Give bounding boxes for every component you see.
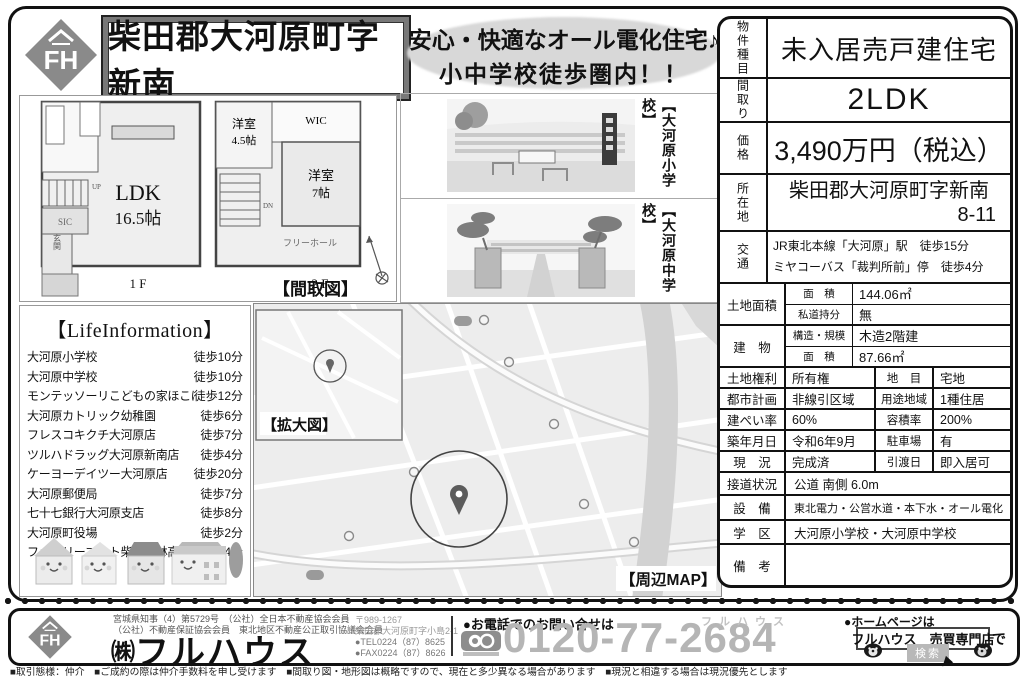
- dog-icon: [863, 643, 883, 663]
- spec-value-layout: 2LDK: [768, 79, 1010, 121]
- footer-bar: FH 宮城県知事（4）第5729号 （公社）全日本不動産協会会員 （公社）不動産…: [8, 608, 1020, 666]
- table-row: 建 物 構造・規模 木造2階建 面 積 87.66㎡: [720, 324, 1010, 366]
- table-row: 間取り 2LDK: [720, 77, 1010, 121]
- floorplan-figure: UP SIC 玄関 LDK 16.5帖 1 F 洋室 4.5帖 WIC 洋室 7…: [19, 95, 397, 302]
- floorplan-freehall-label: フリーホール: [283, 238, 337, 248]
- table-row: 所在地 柴田郡大河原町字新南 8-11: [720, 173, 1010, 230]
- freedial-icon: [461, 631, 501, 662]
- houses-illustration: [24, 534, 246, 593]
- spec-value2: 有: [934, 431, 1010, 450]
- cursor-icon: [943, 656, 955, 669]
- junior-high-school-caption: 【大河原中学校】: [639, 203, 679, 298]
- spec-subvalue: 144.06㎡: [853, 284, 1010, 304]
- footer-company-logo-icon: FH: [27, 614, 73, 660]
- phone-brand-kana: フルハウス: [701, 613, 791, 629]
- spec-value: 大河原小学校・大河原中学校: [786, 521, 1010, 543]
- spec-value: [786, 545, 1010, 585]
- spec-sublabel: 面 積: [786, 284, 853, 304]
- disclaimer-text: ■取引態様：仲介 ■ご成約の際は仲介手数料を申し受けます ■間取り図・地形図は概…: [10, 664, 788, 678]
- photo-elementary: 【大河原小学校】: [401, 94, 721, 199]
- spec-value: 完成済: [786, 452, 876, 471]
- photo-panel: 【大河原小学校】: [400, 93, 722, 303]
- spec-value-type: 未入居売戸建住宅: [768, 19, 1010, 77]
- spec-value: 非線引区域: [786, 389, 876, 408]
- search-row: 検索: [863, 645, 993, 661]
- floorplan-ldk-label: LDK: [115, 180, 160, 205]
- life-information-title: 【LifeInformation】: [20, 314, 250, 343]
- spec-value-access1: JR東北本線「大河原」駅 徒歩15分: [773, 236, 969, 257]
- floorplan-sic-label: SIC: [58, 217, 72, 227]
- spec-value2: 1種住居: [934, 389, 1010, 408]
- floorplan-caption: 【間取図】: [273, 279, 358, 299]
- spec-label-city-planning: 都市計画: [720, 389, 786, 408]
- inset-map-caption: 【拡大図】: [262, 416, 337, 434]
- table-row: 交通 JR東北本線「大河原」駅 徒歩15分 ミヤコーバス「裁判所前」停 徒歩4分: [720, 230, 1010, 282]
- list-item: 大河原小学校徒歩10分: [27, 348, 243, 368]
- map-caption: 【周辺MAP】: [620, 571, 716, 589]
- spec-value: 東北電力・公営水道・本下水・オール電化: [786, 496, 1010, 519]
- spec-label-built: 築年月日: [720, 431, 786, 450]
- spec-value2: 200%: [934, 410, 1010, 429]
- catch-copy: 安心・快適なオール電化住宅♪ 小中学校徒歩圏内！！: [403, 11, 725, 95]
- spec-label-status: 現 況: [720, 452, 786, 471]
- floorplan-up-label: UP: [92, 183, 101, 191]
- spec-sublabel: 構造・規模: [786, 326, 853, 346]
- life-information-panel: 【LifeInformation】 大河原小学校徒歩10分 大河原中学校徒歩10…: [19, 305, 251, 597]
- spec-label2: 用途地域: [876, 389, 934, 408]
- table-row: 備 考: [720, 543, 1010, 585]
- table-row: 現 況 完成済 引渡日 即入居可: [720, 450, 1010, 471]
- table-row: 土地面積 面 積 144.06㎡ 私道持分 無: [720, 282, 1010, 324]
- list-item: フレスコキクチ大河原店徒歩7分: [27, 426, 243, 446]
- spec-label-land-rights: 土地権利: [720, 368, 786, 387]
- footer-divider: [451, 616, 453, 656]
- flyer-main-frame: FH 柴田郡大河原町字新南 安心・快適なオール電化住宅♪ 小中学校徒歩圏内！！ …: [8, 6, 1018, 602]
- spec-value: 令和6年9月: [786, 431, 876, 450]
- spec-value-price: 3,490万円（税込）: [768, 123, 1010, 173]
- list-item: モンテッソーリこどもの家ほこほこ徒歩12分: [27, 387, 243, 407]
- dog-icon: [973, 643, 993, 663]
- spec-label-address: 所在地: [720, 175, 768, 230]
- spec-label-coverage: 建ぺい率: [720, 410, 786, 429]
- elementary-school-caption: 【大河原小学校】: [639, 98, 679, 193]
- neighborhood-map: 【拡大図】 【周辺MAP】: [253, 303, 722, 597]
- search-suffix: で: [992, 629, 1006, 649]
- spec-label-price: 価格: [720, 123, 768, 173]
- floorplan-room45-label: 洋室: [232, 116, 256, 131]
- catch-copy-line2: 小中学校徒歩圏内！！: [403, 55, 725, 89]
- spec-subvalue: 無: [853, 305, 1010, 325]
- elementary-school-photo: [447, 99, 635, 192]
- svg-text:FH: FH: [40, 632, 61, 649]
- floorplan-dn-label: DN: [263, 202, 273, 210]
- compass-icon: [366, 236, 388, 284]
- spec-label-remarks: 備 考: [720, 545, 786, 585]
- floorplan-room7-label: 洋室: [308, 168, 334, 183]
- property-title: 柴田郡大河原町字新南: [103, 17, 409, 99]
- table-row: 都市計画 非線引区域 用途地域 1種住居: [720, 387, 1010, 408]
- floorplan-room7-size: 7帖: [312, 185, 330, 200]
- spec-value-address1: 柴田郡大河原町字新南: [768, 179, 1010, 203]
- table-row: 物件種目 未入居売戸建住宅: [720, 19, 1010, 77]
- list-item: 大河原郵便局徒歩7分: [27, 485, 243, 505]
- spec-value: 公道 南側 6.0m: [786, 473, 1010, 494]
- spec-label-type: 物件種目: [720, 19, 768, 77]
- logo-letters: FH: [44, 45, 79, 75]
- spec-value2: 宅地: [934, 368, 1010, 387]
- spec-value-address2: 8-11: [768, 203, 1010, 227]
- table-row: 価格 3,490万円（税込）: [720, 121, 1010, 173]
- spec-value-access2: ミヤコーバス「裁判所前」停 徒歩4分: [773, 257, 984, 278]
- spec-label-school-district: 学 区: [720, 521, 786, 543]
- catch-copy-line1: 安心・快適なオール電化住宅♪: [403, 21, 725, 55]
- spec-sublabel: 私道持分: [786, 305, 853, 325]
- spec-label-road: 接道状況: [720, 473, 786, 494]
- life-information-list: 大河原小学校徒歩10分 大河原中学校徒歩10分 モンテッソーリこどもの家ほこほこ…: [27, 348, 243, 563]
- inset-map: 【拡大図】: [256, 310, 402, 440]
- table-row: 建ぺい率 60% 容積率 200%: [720, 408, 1010, 429]
- floorplan-wic-label: WIC: [305, 115, 326, 127]
- list-item: 大河原カトリック幼稚園徒歩6分: [27, 407, 243, 427]
- list-item: 七十七銀行大河原支店徒歩8分: [27, 504, 243, 524]
- table-row: 接道状況 公道 南側 6.0m: [720, 471, 1010, 494]
- spec-label2: 容積率: [876, 410, 934, 429]
- spec-label2: 駐車場: [876, 431, 934, 450]
- spec-value: 所有権: [786, 368, 876, 387]
- floorplan-genkan-label: 玄関: [53, 233, 62, 251]
- spec-value: 60%: [786, 410, 876, 429]
- spec-sublabel: 面 積: [786, 347, 853, 367]
- company-logo-icon: FH: [23, 17, 99, 93]
- spec-label-utilities: 設 備: [720, 496, 786, 519]
- table-row: 築年月日 令和6年9月 駐車場 有: [720, 429, 1010, 450]
- floorplan-room45-size: 4.5帖: [232, 134, 257, 147]
- property-spec-table: 物件種目 未入居売戸建住宅 間取り 2LDK 価格 3,490万円（税込） 所在…: [717, 16, 1013, 588]
- spec-label2: 引渡日: [876, 452, 934, 471]
- list-item: ツルハドラッグ大河原新南店徒歩4分: [27, 446, 243, 466]
- floorplan-1f-label: 1 F: [130, 276, 147, 291]
- spec-label-building: 建 物: [720, 326, 786, 366]
- spec-value2: 即入居可: [934, 452, 1010, 471]
- spec-label-access: 交通: [720, 232, 768, 282]
- spec-label-land-area: 土地面積: [720, 284, 786, 324]
- spec-subvalue: 87.66㎡: [853, 347, 1010, 367]
- spec-subvalue: 木造2階建: [853, 326, 1010, 346]
- junior-high-school-photo: [447, 204, 635, 297]
- photo-juniorhigh: 【大河原中学校】: [401, 199, 721, 303]
- search-button: 検索: [907, 644, 949, 662]
- dotted-separator: [0, 596, 1024, 606]
- table-row: 設 備 東北電力・公営水道・本下水・オール電化: [720, 494, 1010, 519]
- list-item: ケーヨーデイツー大河原店徒歩20分: [27, 465, 243, 485]
- table-row: 土地権利 所有権 地 目 宅地: [720, 366, 1010, 387]
- list-item: 大河原中学校徒歩10分: [27, 368, 243, 388]
- company-address: 〒989-1267 柴田郡大河原町字小島2-1 ●TEL0224（87）8625…: [355, 615, 458, 659]
- floorplan-ldk-size: 16.5帖: [115, 209, 162, 228]
- spec-label-layout: 間取り: [720, 79, 768, 121]
- spec-label2: 地 目: [876, 368, 934, 387]
- property-title-text: 柴田郡大河原町字新南: [108, 10, 404, 106]
- table-row: 学 区 大河原小学校・大河原中学校: [720, 519, 1010, 543]
